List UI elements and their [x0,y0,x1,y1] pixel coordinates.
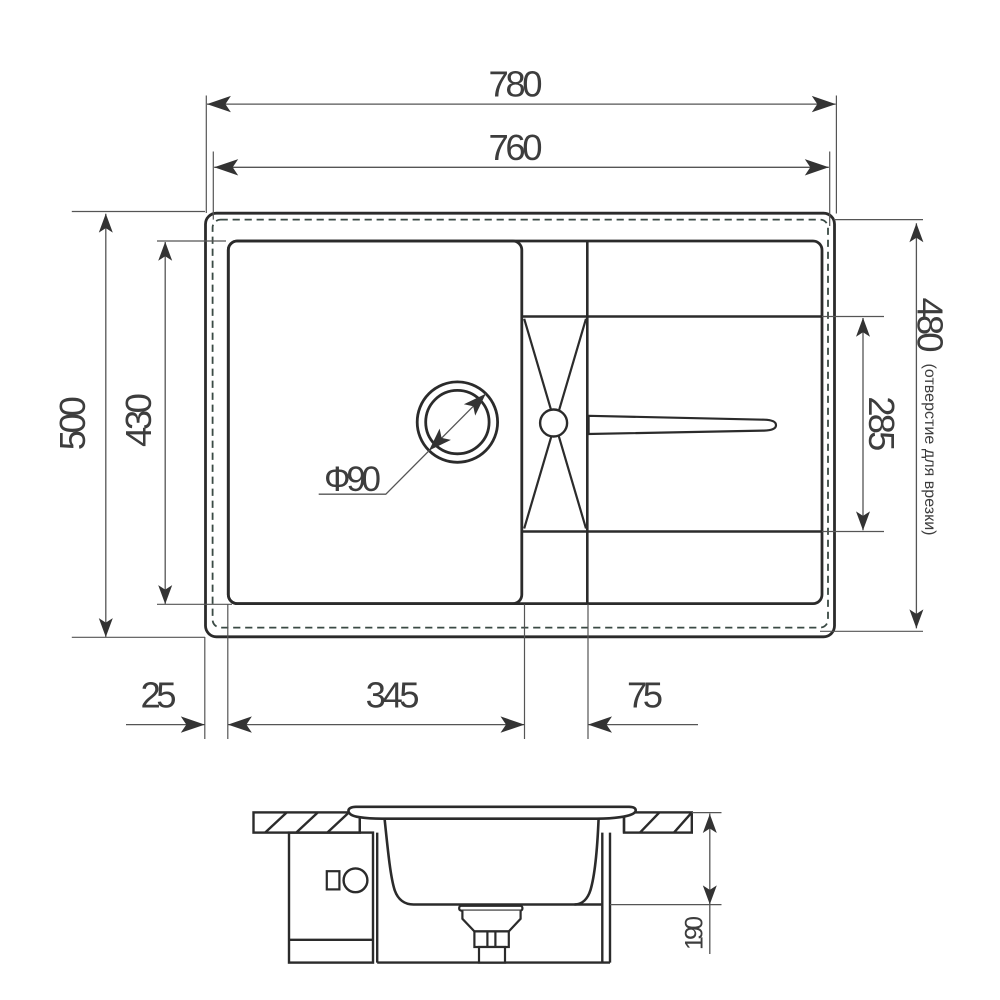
svg-text:780: 780 [489,63,543,104]
svg-text:430: 430 [118,393,159,447]
svg-text:285: 285 [861,396,902,451]
svg-text:190: 190 [681,916,709,950]
svg-text:345: 345 [366,675,420,716]
svg-text:(отверстие для врезки): (отверстие для врезки) [921,364,938,536]
svg-text:760: 760 [489,127,543,168]
svg-text:25: 25 [141,675,177,716]
svg-text:480: 480 [910,298,951,353]
svg-text:500: 500 [52,396,93,450]
svg-text:Ф90: Ф90 [324,460,381,499]
svg-text:75: 75 [627,675,663,716]
